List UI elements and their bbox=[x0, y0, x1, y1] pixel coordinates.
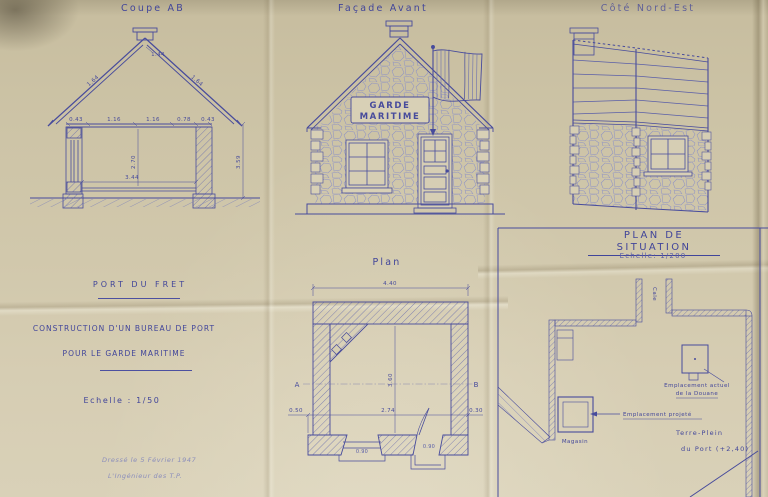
douane-label-2: de la Douane bbox=[676, 391, 719, 397]
sign-line1: GARDE bbox=[370, 101, 411, 111]
cartouche-scale: Echelle : 1/50 bbox=[62, 396, 182, 405]
plan-dim-top: 4.40 bbox=[311, 281, 470, 296]
coupe-dimensions: 1.44 1.64 1.64 0.43 1.16 1.16 0.78 0.43 … bbox=[66, 47, 245, 200]
cote-title: Côté Nord-Est bbox=[588, 4, 708, 15]
plan-chimney bbox=[330, 324, 368, 362]
coupe-title: Coupe AB bbox=[98, 4, 208, 15]
cartouche-line2: pour le Garde Maritime bbox=[38, 350, 210, 359]
cartouche-location: Port du Fret bbox=[55, 280, 225, 289]
douane-building bbox=[682, 345, 724, 382]
cale-label: Cale bbox=[651, 287, 657, 301]
dim-plan-door: 0.90 bbox=[423, 444, 435, 450]
cartouche-location-underline bbox=[98, 298, 180, 299]
dim-plan-inner: 2.74 bbox=[381, 408, 395, 414]
fold-crease-vertical-1 bbox=[263, 0, 275, 497]
magasin-label: Magasin bbox=[562, 439, 588, 445]
du-port-label: du Port (+2,40) bbox=[681, 445, 749, 453]
cote-window bbox=[644, 136, 692, 176]
dim-wall-height: 3.59 bbox=[236, 155, 242, 169]
terre-plein-label: Terre-Plein bbox=[675, 429, 723, 437]
section-marker-a: A bbox=[295, 381, 300, 389]
facade-door bbox=[414, 134, 456, 213]
dim-plan-left: 0.50 bbox=[289, 408, 303, 414]
dim-ridge: 1.44 bbox=[151, 52, 165, 58]
proposed-label: Emplacement projeté bbox=[623, 411, 692, 418]
dim-plan-depth: 3.60 bbox=[388, 373, 394, 387]
proposed-building bbox=[558, 397, 620, 432]
dim-ceiling-3: 0.78 bbox=[177, 117, 191, 123]
cartouche-signature-note: L'Ingénieur des T.P. bbox=[108, 473, 258, 480]
cartouche-date-note: Dressé le 5 Février 1947 bbox=[102, 457, 252, 464]
dim-interior-height: 2.70 bbox=[131, 155, 137, 169]
coupe-roof bbox=[48, 28, 242, 127]
facade-base bbox=[295, 204, 505, 214]
dim-ceiling-0: 0.43 bbox=[69, 117, 83, 123]
plan-door-swing bbox=[417, 408, 429, 435]
plan-title: Plan bbox=[352, 258, 422, 269]
sign-line2: MARITIME bbox=[360, 112, 421, 122]
dim-plan-window: 0.90 bbox=[356, 449, 368, 455]
facade-window bbox=[342, 140, 392, 193]
facade-drawing: GARDE MARITIME bbox=[295, 18, 505, 218]
coupe-drawing: 1.44 1.64 1.64 0.43 1.16 1.16 0.78 0.43 … bbox=[30, 22, 260, 217]
coupe-ground bbox=[30, 198, 260, 207]
dim-ceiling-1: 1.16 bbox=[107, 117, 121, 123]
coupe-walls bbox=[63, 127, 215, 208]
dim-ceiling-4: 0.43 bbox=[201, 117, 215, 123]
douane-label-1: Emplacement actuel bbox=[664, 383, 730, 389]
cote-drawing bbox=[552, 18, 747, 218]
situation-drawing: Cale Emplacement actuel de la Douane Emp… bbox=[490, 225, 768, 497]
dim-plan-width: 4.40 bbox=[383, 281, 397, 287]
facade-sign: GARDE MARITIME bbox=[351, 97, 429, 123]
cartouche-line1: Construction d'un Bureau de Port bbox=[8, 325, 240, 334]
slipway bbox=[498, 387, 550, 443]
situation-border bbox=[498, 228, 768, 497]
facade-title: Façade Avant bbox=[318, 4, 448, 15]
section-marker-b: B bbox=[474, 381, 479, 389]
dim-ceiling-2: 1.16 bbox=[146, 117, 160, 123]
blueprint-sheet: Coupe AB Façade Avant Côté Nord-Est Plan… bbox=[0, 0, 768, 497]
dim-plan-right: 0.30 bbox=[469, 408, 483, 414]
facade-stone bbox=[315, 44, 485, 204]
cartouche-underline-2 bbox=[100, 370, 192, 371]
plan-drawing: 4.40 3.60 A B bbox=[283, 272, 488, 487]
dim-interior-width: 3.44 bbox=[125, 175, 139, 181]
